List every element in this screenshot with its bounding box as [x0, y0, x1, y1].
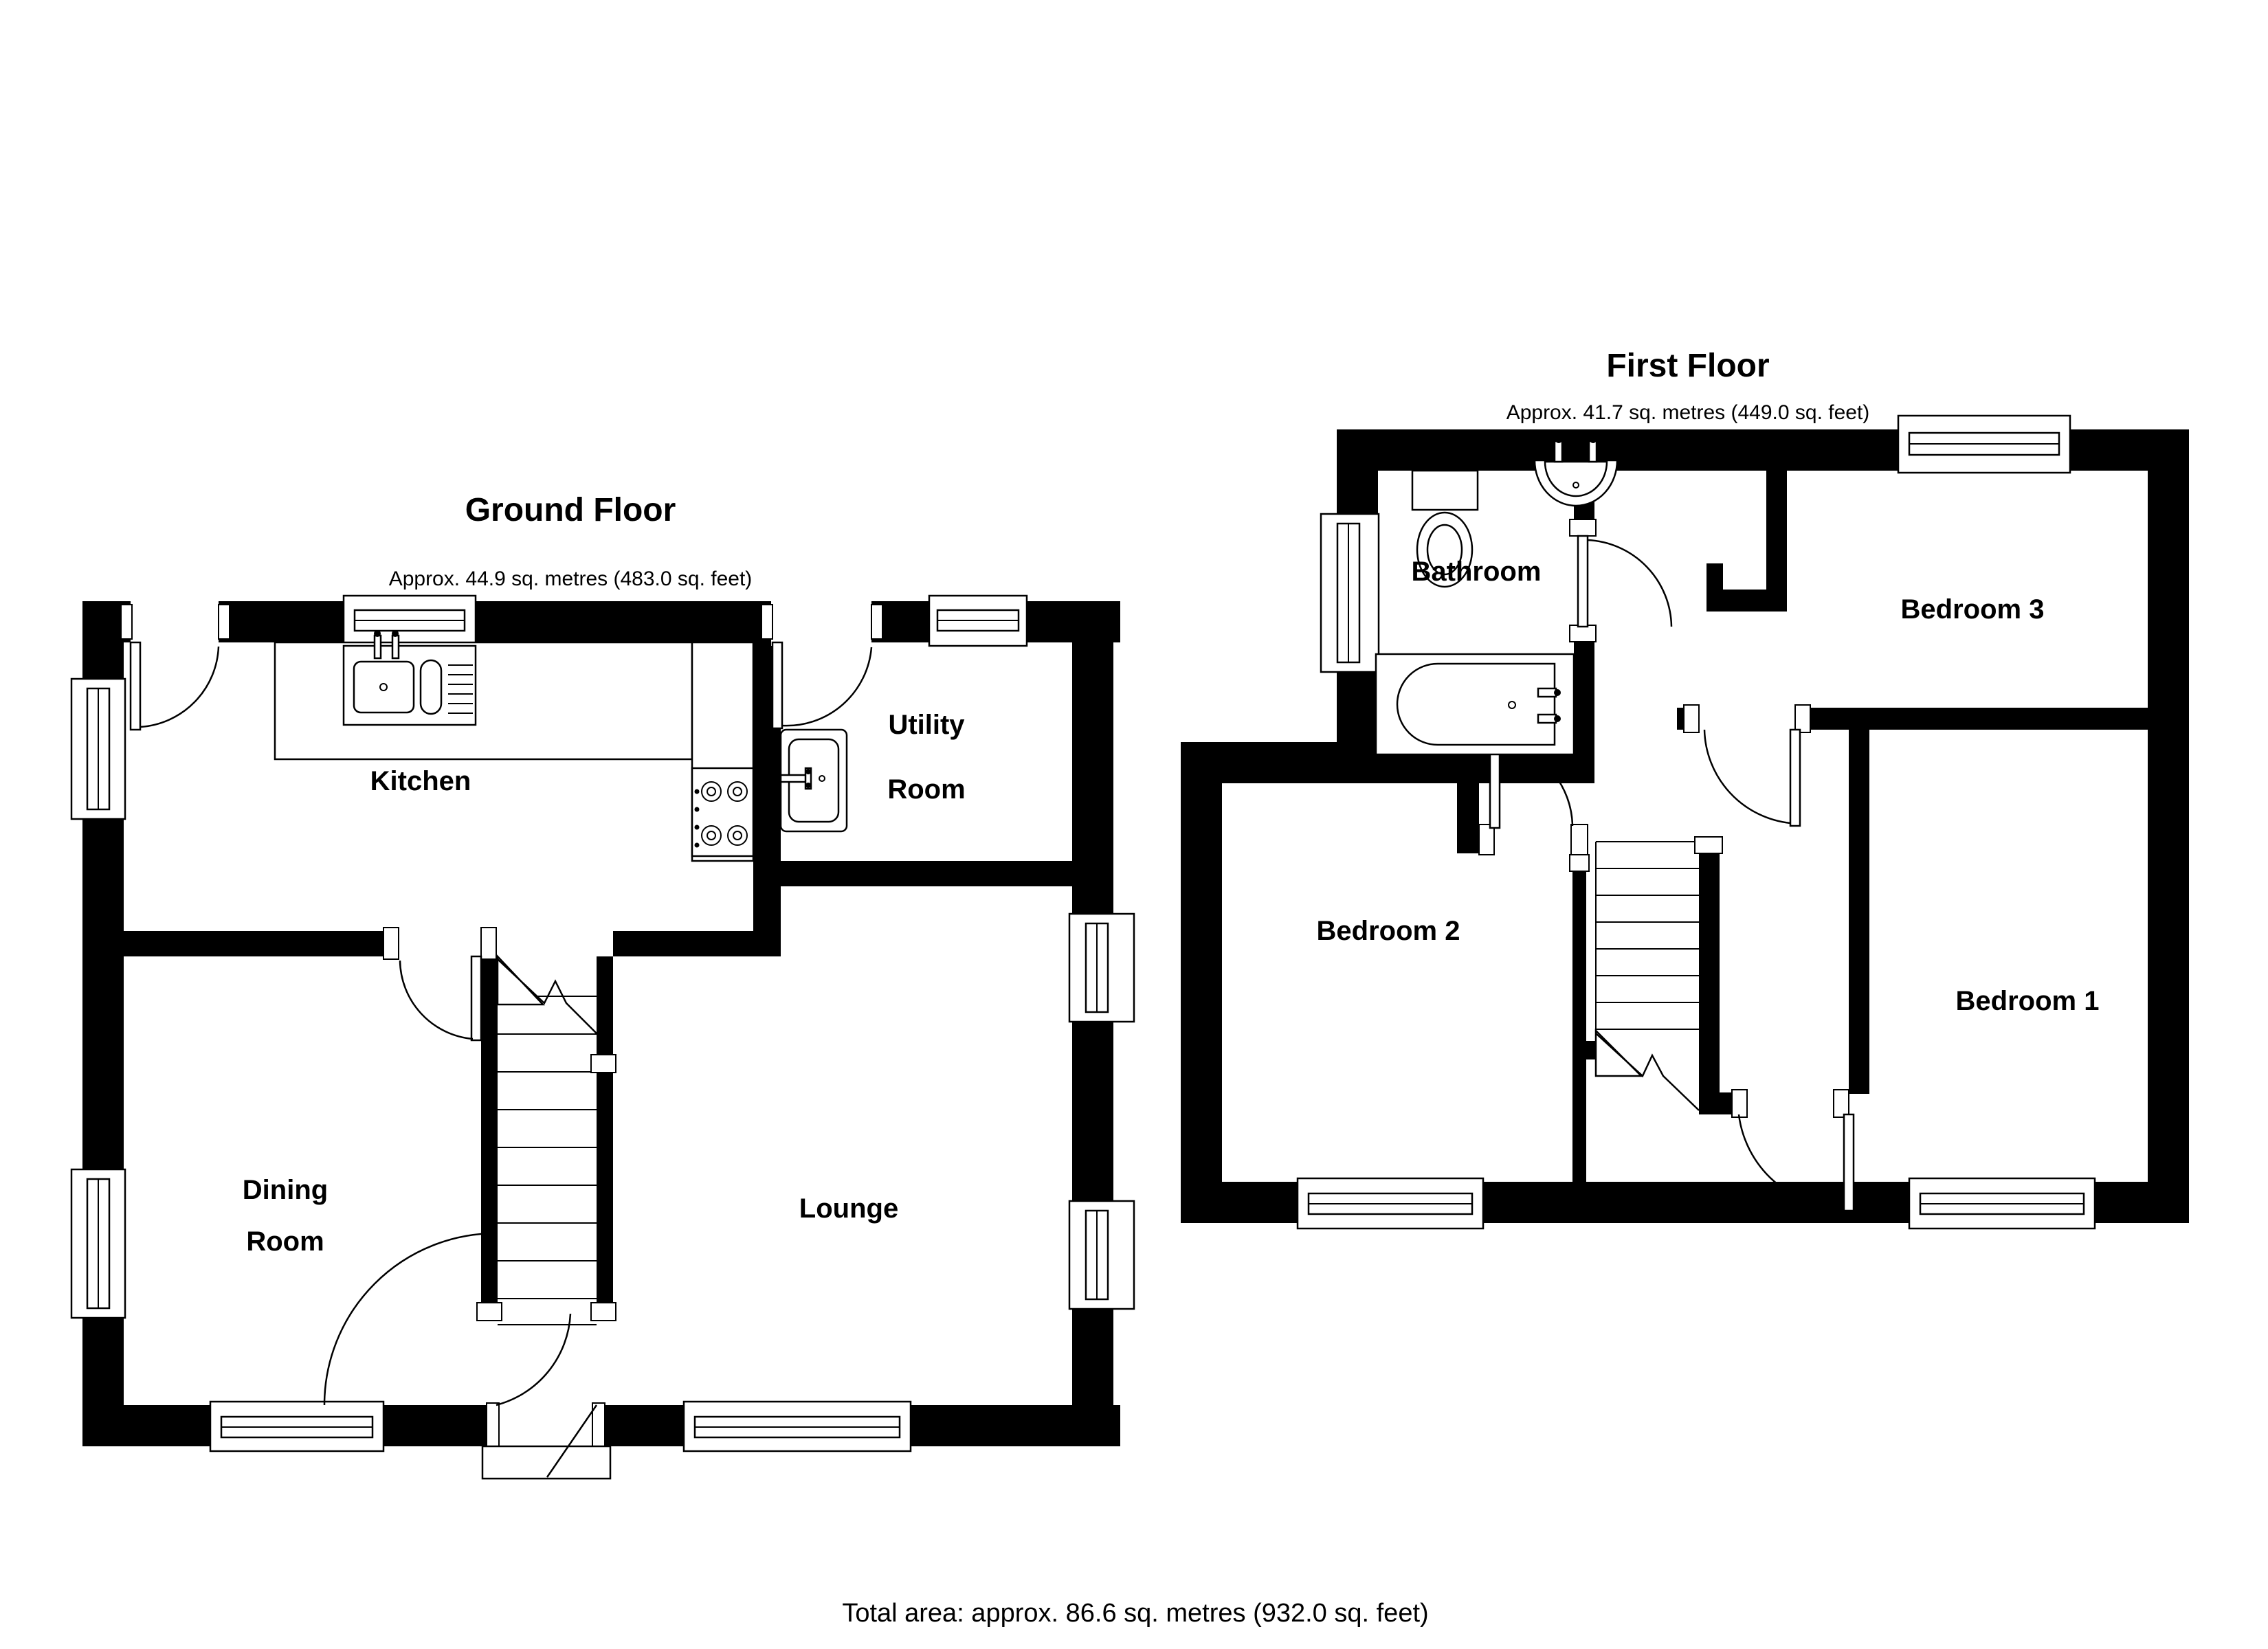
floorplan-canvas: Ground Floor Approx. 44.9 sq. metres (48…: [0, 0, 2268, 1649]
ff-bedroom3-door: [1684, 705, 1810, 826]
gf-porch: [482, 1446, 610, 1479]
gf-utility-door-opening: [771, 598, 871, 646]
gf-label-dining-room: DiningRoom: [243, 1175, 328, 1257]
gf-window-lounge-bottom: [684, 1402, 911, 1451]
ff-bathroom-door: [1570, 519, 1671, 642]
gf-window-kitchen-left: [71, 679, 125, 819]
gf-label-utility-room: UtilityRoom: [887, 710, 965, 805]
first-floor-plan: First Floor Approx. 41.7 sq. metres (449…: [1181, 348, 2189, 1229]
gf-window-utility-top: [929, 596, 1027, 646]
gf-utility-sink: [781, 730, 847, 831]
total-area-label: Total area: approx. 86.6 sq. metres (932…: [842, 1599, 1428, 1628]
ff-window-bathroom-left: [1321, 514, 1379, 672]
gf-window-dining-left: [71, 1169, 125, 1318]
ff-label-bedroom1: Bedroom 1: [1956, 986, 2100, 1016]
gf-entrance-opening: [131, 598, 219, 646]
ff-label-bedroom2: Bedroom 2: [1317, 916, 1460, 946]
gf-hall-door: [383, 928, 496, 1040]
floorplan-page: Ground Floor Approx. 44.9 sq. metres (48…: [0, 0, 2268, 1649]
ff-bath: [1376, 654, 1574, 754]
gf-label-kitchen: Kitchen: [370, 766, 471, 796]
gf-label-lounge: Lounge: [799, 1193, 898, 1224]
ground-floor-area: Approx. 44.9 sq. metres (483.0 sq. feet): [389, 568, 753, 590]
ff-window-bedroom1-bottom: [1909, 1178, 2095, 1229]
first-floor-title: First Floor: [1606, 348, 1769, 384]
ff-window-bedroom3-top: [1898, 416, 2070, 473]
first-floor-area: Approx. 41.7 sq. metres (449.0 sq. feet): [1507, 401, 1870, 424]
ff-window-bedroom2-bottom: [1298, 1178, 1483, 1229]
ff-label-bedroom3: Bedroom 3: [1901, 594, 2045, 625]
ground-floor-plan: Ground Floor Approx. 44.9 sq. metres (48…: [71, 492, 1134, 1479]
gf-window-lounge-right-lower: [1069, 1201, 1134, 1309]
gf-hob: [692, 768, 753, 856]
gf-window-kitchen-top: [344, 596, 476, 646]
gf-window-lounge-right-upper: [1069, 914, 1134, 1022]
gf-staircase: [477, 956, 616, 1325]
ground-floor-title: Ground Floor: [465, 492, 676, 528]
gf-window-dining-bottom: [210, 1402, 383, 1451]
ff-label-bathroom: Bathroom: [1412, 557, 1542, 587]
